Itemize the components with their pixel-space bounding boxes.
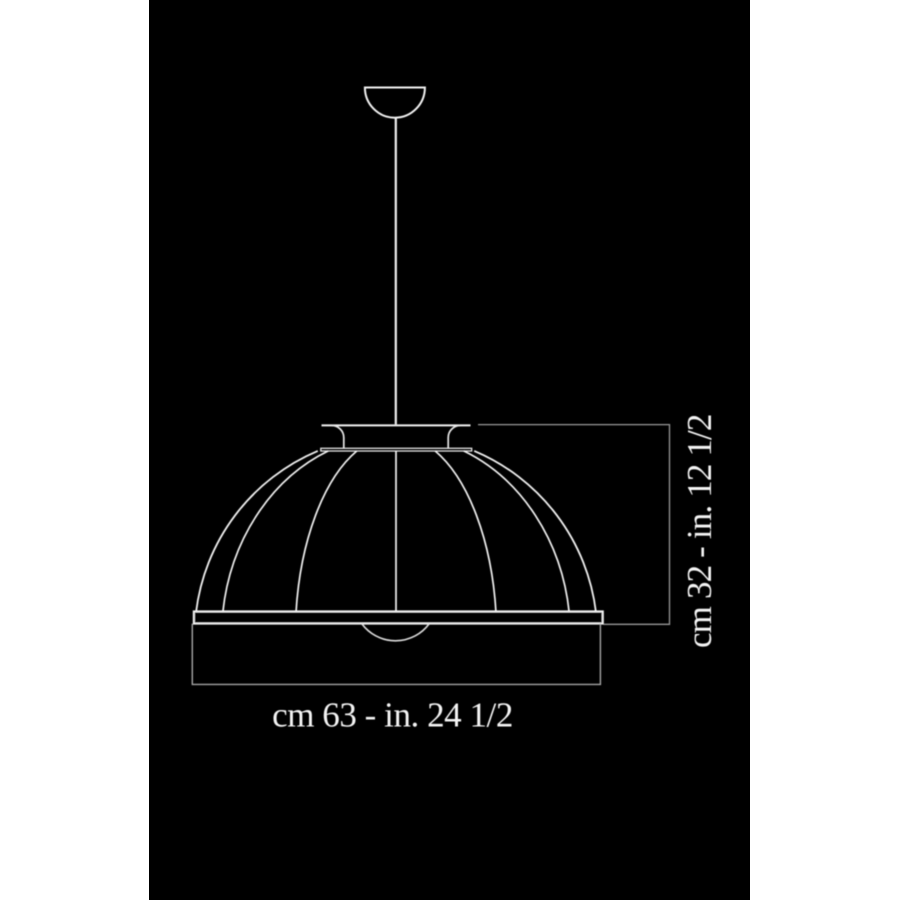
svg-text:cm 32 - in. 12 1/2: cm 32 - in. 12 1/2 — [680, 414, 719, 648]
svg-text:cm 63 - in. 24 1/2: cm 63 - in. 24 1/2 — [272, 696, 513, 735]
